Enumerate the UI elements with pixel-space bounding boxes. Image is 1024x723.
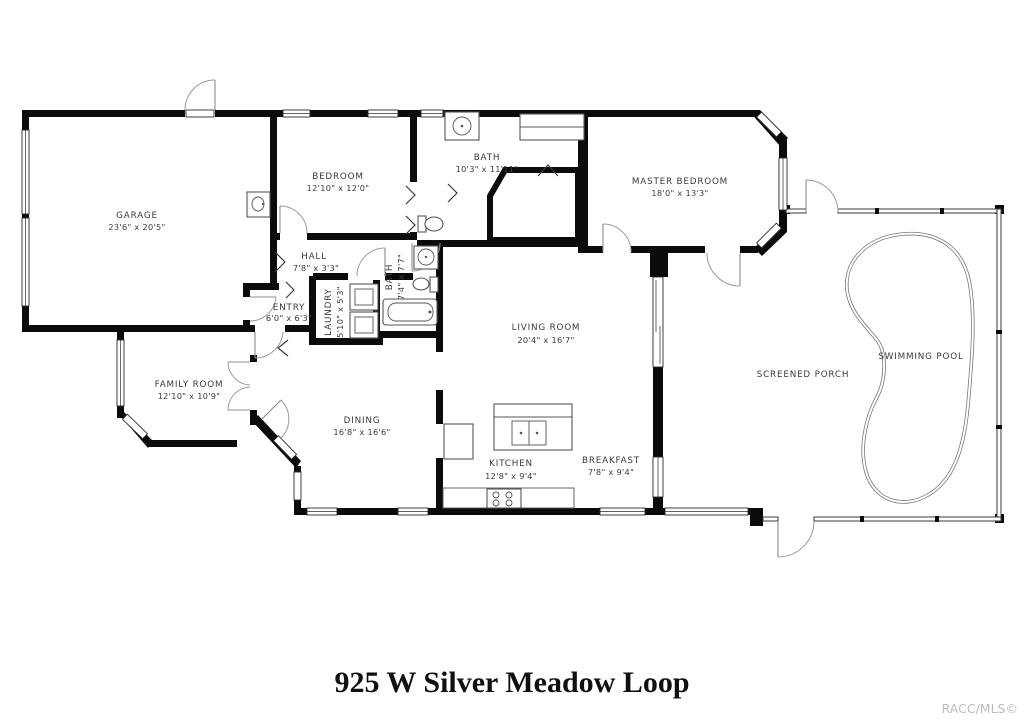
kitchen-counter-range — [443, 488, 574, 508]
bedroom-door — [280, 206, 307, 233]
room-label-living-room: LIVING ROOM — [512, 323, 581, 333]
room-label-garage: GARAGE — [116, 211, 158, 221]
floor-plan-page: GARAGE 23'6" x 20'5" BEDROOM 12'10" x 12… — [0, 0, 1024, 723]
kitchen-island — [494, 404, 572, 450]
floor-plan-drawing: GARAGE 23'6" x 20'5" BEDROOM 12'10" x 12… — [0, 0, 1024, 723]
room-dims-living-room: 20'4" x 16'7" — [517, 335, 574, 345]
bathtub — [383, 299, 437, 325]
laundry-door — [357, 248, 385, 276]
toilet-main — [418, 216, 443, 232]
bath-closet — [520, 114, 584, 140]
room-label-bath-small: BATH — [385, 264, 395, 291]
mls-watermark: RACC/MLS© — [942, 701, 1018, 716]
bath-small-sink — [414, 246, 438, 269]
master-porch-door — [707, 253, 740, 286]
room-label-dining: DINING — [344, 416, 381, 426]
room-label-screened-porch: SCREENED PORCH — [757, 370, 850, 380]
swimming-pool-shape — [847, 234, 973, 502]
room-dims-family-room: 12'10" x 10'9" — [158, 391, 221, 401]
room-label-family-room: FAMILY ROOM — [155, 380, 224, 390]
toilet-small — [413, 277, 438, 292]
room-dims-bath-main: 10'3" x 11'11" — [456, 164, 519, 174]
room-dims-laundry: 5'10" x 5'3" — [335, 286, 345, 338]
room-dims-dining: 16'8" x 16'6" — [333, 427, 390, 437]
room-dims-entry: 6'0" x 6'3" — [266, 313, 312, 323]
shower — [490, 170, 578, 240]
address-title: 925 W Silver Meadow Loop — [0, 666, 1024, 700]
family-opening-chevron — [278, 340, 288, 356]
room-dims-breakfast: 7'8" x 9'4" — [588, 467, 634, 477]
garage-top-door — [185, 80, 215, 117]
refrigerator — [444, 424, 473, 459]
room-dims-garage: 23'6" x 20'5" — [108, 222, 165, 232]
bath-main-sink — [445, 112, 479, 140]
entry-family-door — [255, 332, 283, 358]
room-dims-hall: 7'8" x 3'3" — [293, 263, 339, 273]
room-label-kitchen: KITCHEN — [489, 459, 533, 469]
room-label-entry: ENTRY — [273, 303, 305, 313]
entry-opening-chevron — [286, 282, 294, 298]
room-dims-bath-small: 7'4" x 7'7" — [396, 254, 406, 300]
room-label-laundry: LAUNDRY — [324, 288, 334, 335]
room-label-bedroom: BEDROOM — [312, 172, 364, 182]
garage-sink — [247, 192, 270, 217]
room-dims-kitchen: 12'8" x 9'4" — [485, 471, 537, 481]
room-label-hall: HALL — [301, 252, 327, 262]
porch-top-door — [806, 180, 838, 212]
bath-passage-chevron — [448, 184, 457, 202]
room-label-master-bedroom: MASTER BEDROOM — [632, 177, 728, 187]
room-dims-master-bedroom: 18'0" x 13'3" — [651, 188, 708, 198]
room-dims-bedroom: 12'10" x 12'0" — [307, 183, 370, 193]
room-label-swimming-pool: SWIMMING POOL — [878, 352, 963, 362]
porch-bottom-door — [778, 521, 814, 557]
family-french-doors — [228, 362, 250, 410]
room-label-bath-main: BATH — [474, 153, 501, 163]
room-label-breakfast: BREAKFAST — [582, 456, 640, 466]
